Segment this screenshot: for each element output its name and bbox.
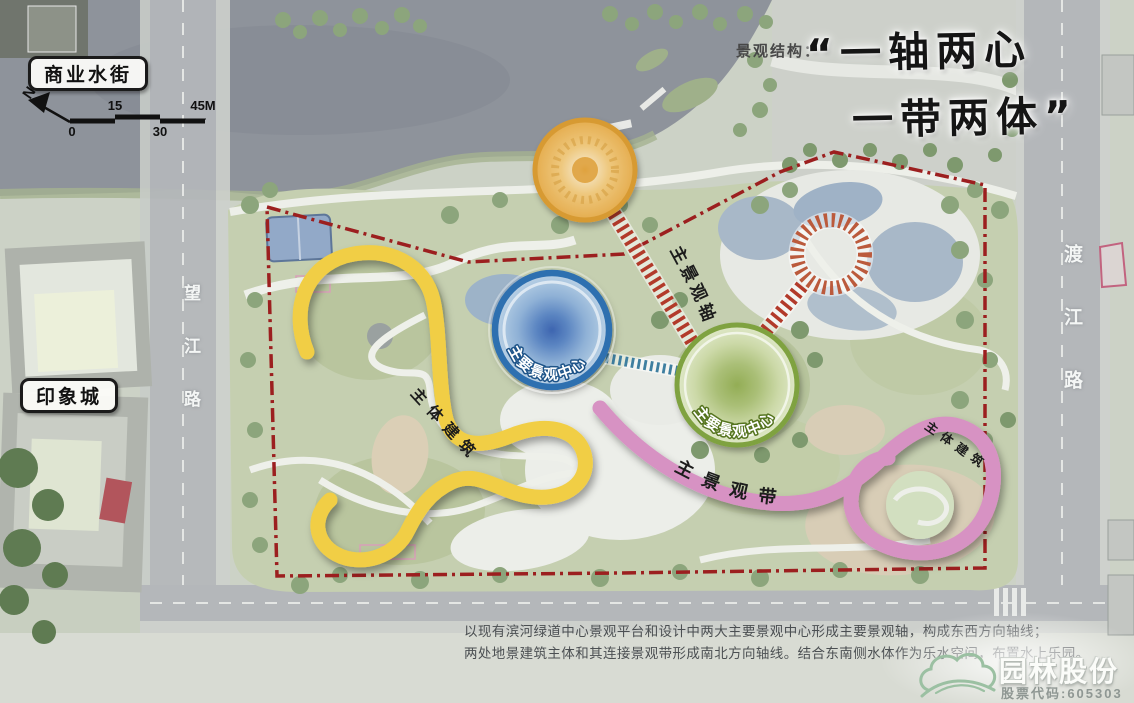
title-quote-line1: “一轴两心 xyxy=(805,16,1032,81)
wangjiang-road-label: 望江路 xyxy=(178,284,203,443)
commercial-street-label: 商业水街 xyxy=(28,56,148,91)
pink-parcel-outline xyxy=(1100,243,1126,287)
scale-15: 15 xyxy=(108,98,122,113)
orange-node xyxy=(535,120,635,220)
scale-30: 30 xyxy=(153,124,167,139)
dujiang-road-label: 渡江路 xyxy=(1058,244,1085,433)
impression-city-label: 印象城 xyxy=(20,378,118,413)
landscape-structure-plan: 主要景观中心 主要景观中心 主景观轴 主景观带 主体建筑 主体建筑 N 0 15… xyxy=(0,0,1134,703)
logo-leaf-icon xyxy=(914,648,1002,702)
scale-45m: 45M xyxy=(190,98,215,113)
scale-0: 0 xyxy=(68,124,75,139)
logo-stock-code: 股票代码:605303 xyxy=(1001,683,1123,702)
impression-city-building xyxy=(5,241,152,393)
title-quote-line2: 一带两体” xyxy=(851,82,1078,147)
